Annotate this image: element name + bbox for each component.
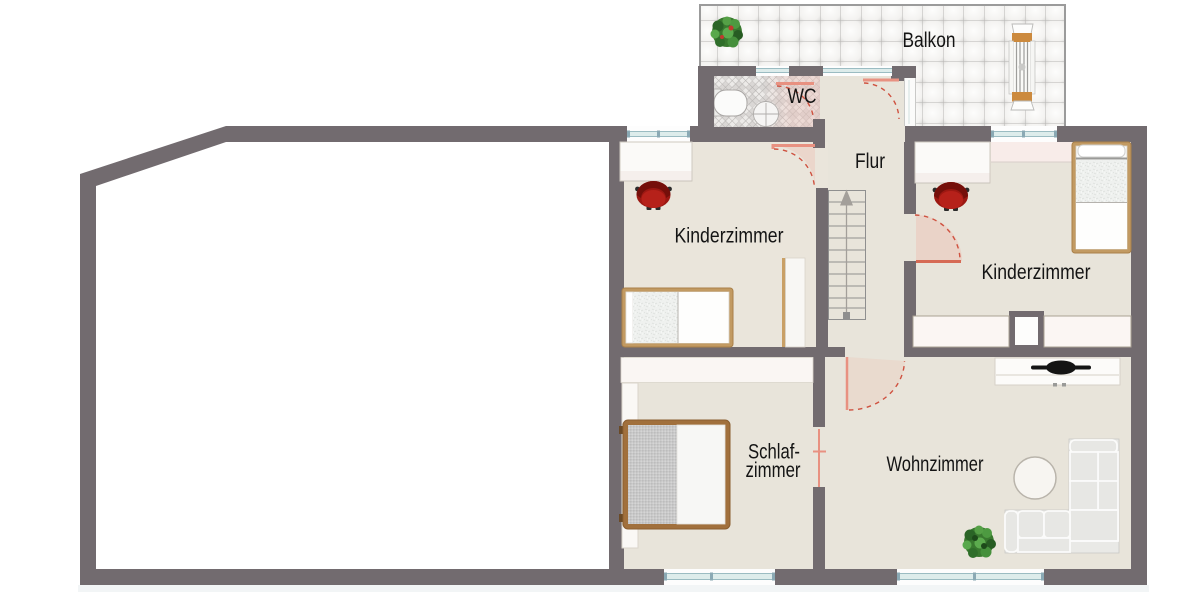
svg-text:WC: WC (788, 85, 817, 108)
svg-text:Balkon: Balkon (903, 29, 956, 52)
svg-text:zimmer: zimmer (746, 459, 801, 482)
svg-text:Flur: Flur (855, 150, 885, 173)
svg-text:Kinderzimmer: Kinderzimmer (675, 225, 784, 248)
svg-text:Wohnzimmer: Wohnzimmer (887, 453, 984, 476)
svg-text:Kinderzimmer: Kinderzimmer (982, 261, 1091, 284)
